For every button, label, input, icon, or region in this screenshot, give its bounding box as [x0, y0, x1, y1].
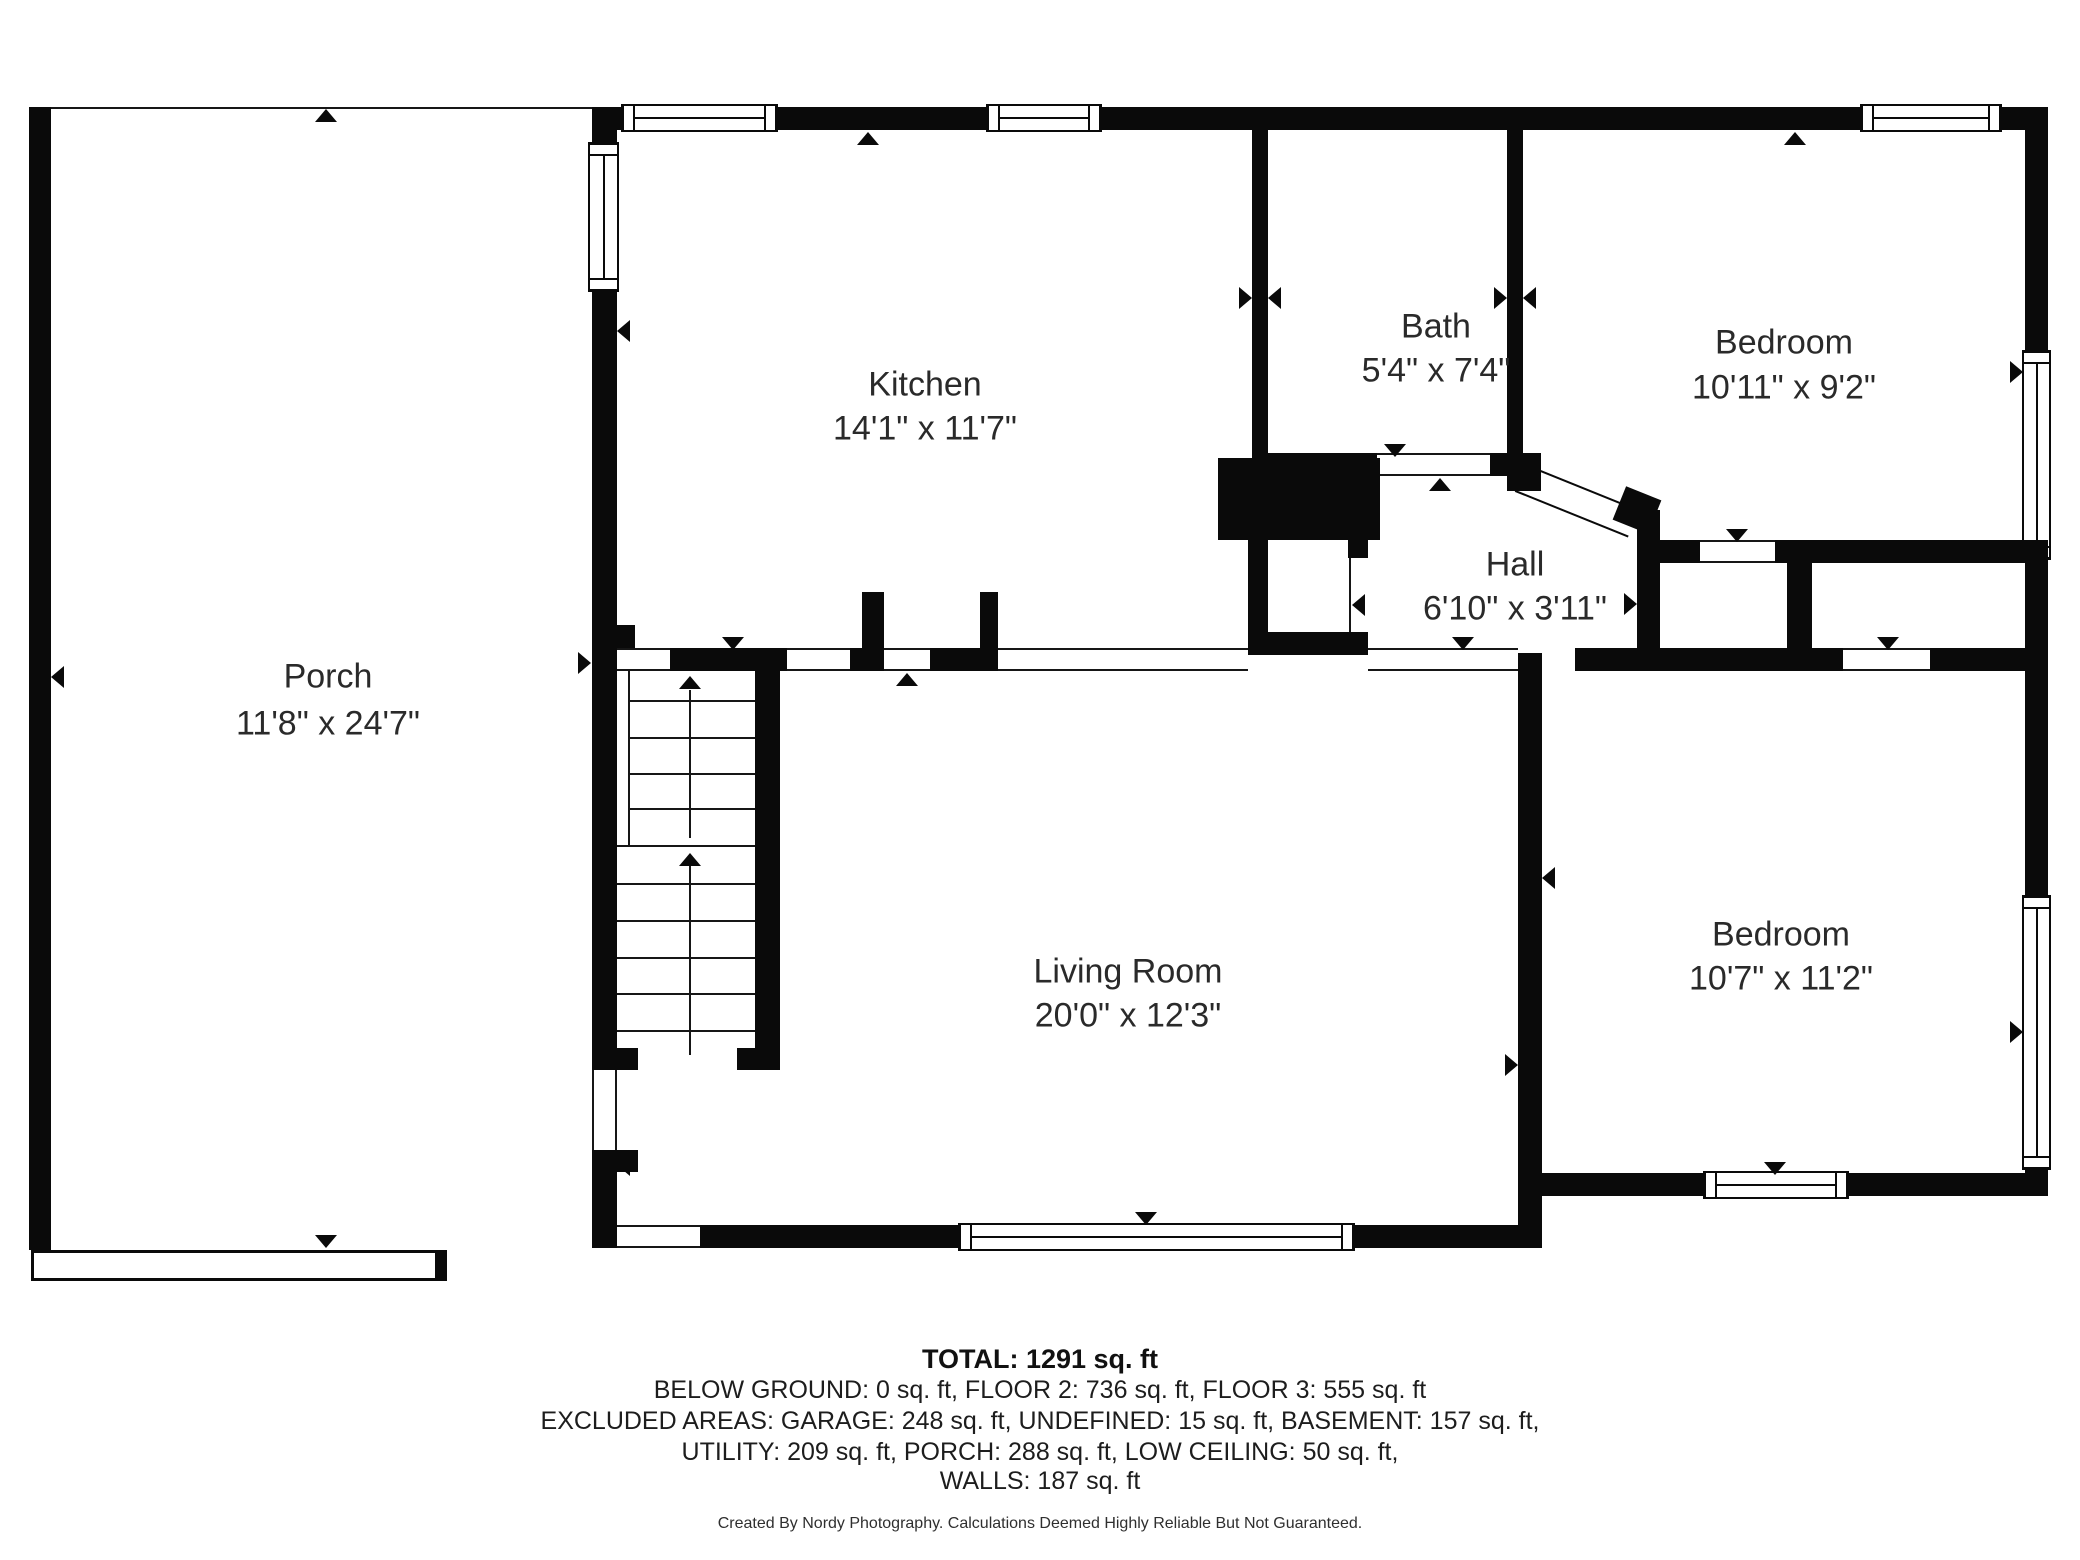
window-pane-line [1871, 117, 1991, 119]
wall-lr-bedroom-divider [1518, 653, 1542, 1248]
opening-edge [998, 669, 1248, 671]
room-label-porch: Porch [284, 658, 373, 697]
wall-porch-lr-lower [592, 1150, 617, 1248]
door-edge [617, 1225, 700, 1227]
porch-step-cap [435, 1250, 447, 1281]
camera-marker-icon [1452, 637, 1474, 650]
room-label-bedroom-bottom: Bedroom [1712, 916, 1850, 955]
window-pane-line [969, 1236, 1344, 1238]
room-label-kitchen: Kitchen [868, 366, 981, 405]
porch-step [31, 1250, 447, 1281]
wall-porch-left [29, 107, 51, 1250]
wall-kitchen-left-upper [592, 107, 617, 142]
opening-edge [787, 669, 850, 671]
room-label-bath: Bath [1401, 308, 1471, 347]
stair-tread [617, 883, 755, 885]
camera-marker-icon [1726, 529, 1748, 542]
stair-up-arrow-icon [679, 853, 701, 866]
stair-tread [630, 700, 755, 702]
window-cap [1341, 1223, 1354, 1251]
camera-marker-icon [857, 132, 879, 145]
stair-tread [630, 773, 755, 775]
camera-marker-icon [1523, 287, 1536, 309]
window-kitchen-north-2 [986, 104, 1102, 132]
window-cap [1835, 1171, 1848, 1199]
window-pane-line [632, 117, 767, 119]
stair-tread [630, 737, 755, 739]
camera-marker-icon [1494, 287, 1507, 309]
wall-block-hall-north [1218, 458, 1380, 540]
stair-tread [617, 957, 755, 959]
camera-marker-icon [2010, 361, 2023, 383]
window-bedroom-bottom-east [2022, 895, 2051, 1170]
window-pane-line [603, 153, 605, 281]
window-cap [2022, 896, 2051, 909]
window-cap [959, 1223, 972, 1251]
wall-bedroom-bottom-south-left [1518, 1173, 1703, 1196]
door-edge [1349, 558, 1351, 632]
camera-marker-icon [617, 320, 630, 342]
stair-up-arrow-icon [679, 676, 701, 689]
diagonal-wall-cap [1507, 453, 1541, 491]
window-kitchen-north-1 [621, 104, 778, 132]
camera-marker-icon [1268, 287, 1281, 309]
window-cap [2022, 351, 2051, 364]
door-edge [1377, 474, 1490, 476]
stair-landing-edge [617, 845, 755, 847]
opening-edge [787, 648, 850, 650]
camera-marker-icon [617, 1154, 630, 1176]
window-cap [588, 143, 619, 156]
camera-marker-icon [2010, 1021, 2023, 1043]
camera-marker-icon [1542, 867, 1555, 889]
camera-marker-icon [51, 666, 64, 688]
wall-lr-south-right [1355, 1225, 1542, 1248]
window-pane-line [2036, 906, 2038, 1159]
wall-stub [980, 592, 998, 671]
window-pane-line [1714, 1184, 1838, 1186]
wall-kitchen-left-main [592, 292, 617, 1070]
wall-bath-bedroom-divider [1507, 130, 1523, 465]
summary-line-3: EXCLUDED AREAS: GARAGE: 248 sq. ft, UNDE… [0, 1407, 2080, 1436]
window-cap [1088, 104, 1101, 132]
room-dims-bedroom-top: 10'11" x 9'2" [1692, 369, 1876, 408]
camera-marker-icon [1239, 287, 1252, 309]
opening-edge [884, 669, 930, 671]
camera-marker-icon [1384, 444, 1406, 457]
summary-total: TOTAL: 1291 sq. ft [0, 1344, 2080, 1375]
wall-bedroom-bottom-south-right [1849, 1173, 2048, 1196]
camera-marker-icon [896, 673, 918, 686]
wall-bedroom-top-bottom-right [1775, 540, 2048, 563]
door-edge [1700, 561, 1775, 563]
room-dims-living-room: 20'0" x 12'3" [1035, 997, 1221, 1036]
wall-hall-closet-bottom [1248, 632, 1368, 655]
window-cap [1861, 104, 1874, 132]
camera-marker-icon [1352, 594, 1365, 616]
camera-marker-icon [578, 652, 591, 674]
summary-line-5: WALLS: 187 sq. ft [0, 1467, 2080, 1496]
camera-marker-icon [1784, 132, 1806, 145]
window-bedroom-bottom-south [1703, 1171, 1849, 1199]
stair-arrow-line [689, 865, 691, 1055]
stair-tread [617, 920, 755, 922]
room-label-bedroom-top: Bedroom [1715, 324, 1853, 363]
window-cap [987, 104, 1000, 132]
floor-plan-canvas: Porch 11'8" x 24'7" Kitchen 14'1" x 11'7… [0, 0, 2080, 1560]
window-bedroom-top-east [2022, 350, 2051, 560]
window-cap [588, 278, 619, 291]
stair-stringer [628, 671, 630, 845]
window-bedroom-top-north [1860, 104, 2002, 132]
window-cap [1704, 1171, 1717, 1199]
wall-bedroom-bottom-top-left [1575, 648, 1843, 671]
wall-stairs-right [755, 648, 780, 1070]
camera-marker-icon [315, 109, 337, 122]
room-dims-kitchen: 14'1" x 11'7" [833, 410, 1017, 449]
wall-kitchen-bath-divider [1252, 130, 1268, 476]
opening-edge [884, 648, 930, 650]
door-edge [615, 1070, 617, 1150]
room-dims-porch: 11'8" x 24'7" [236, 705, 420, 744]
window-cap [764, 104, 777, 132]
room-label-hall: Hall [1486, 546, 1545, 585]
footer-credit: Created By Nordy Photography. Calculatio… [0, 1515, 2080, 1533]
window-cap [622, 104, 635, 132]
camera-marker-icon [722, 637, 744, 650]
wall-hall-closet-stub [1348, 540, 1368, 558]
door-edge [1843, 669, 1930, 671]
window-cap [1988, 104, 2001, 132]
wall-foot [737, 1048, 755, 1070]
door-edge [617, 1246, 700, 1248]
wall-foot [617, 625, 635, 648]
opening-edge [1368, 648, 1518, 650]
wall-lr-south-left [700, 1225, 958, 1248]
camera-marker-icon [1624, 593, 1637, 615]
opening-edge [998, 648, 1248, 650]
stair-tread [617, 993, 755, 995]
door-edge [592, 1070, 594, 1150]
stair-tread [630, 808, 755, 810]
summary-line-4: UTILITY: 209 sq. ft, PORCH: 288 sq. ft, … [0, 1438, 2080, 1467]
opening-edge [617, 669, 670, 671]
camera-marker-icon [1505, 1054, 1518, 1076]
stair-tread [617, 1030, 755, 1032]
wall-closet-left [1637, 510, 1660, 655]
window-pane-line [2036, 361, 2038, 549]
camera-marker-icon [1135, 1212, 1157, 1225]
window-kitchen-west [588, 142, 619, 292]
room-label-living-room: Living Room [1034, 953, 1223, 992]
opening-edge [617, 648, 670, 650]
camera-marker-icon [315, 1235, 337, 1248]
wall-top [592, 107, 2048, 130]
summary-line-2: BELOW GROUND: 0 sq. ft, FLOOR 2: 736 sq.… [0, 1376, 2080, 1405]
room-dims-bedroom-bottom: 10'7" x 11'2" [1689, 960, 1873, 999]
camera-marker-icon [1877, 637, 1899, 650]
camera-marker-icon [1764, 1162, 1786, 1175]
wall-foot [617, 1048, 638, 1070]
window-cap [2022, 1156, 2051, 1169]
window-pane-line [997, 117, 1091, 119]
wall-stub-flare [850, 648, 884, 671]
camera-marker-icon [1429, 478, 1451, 491]
room-dims-hall: 6'10" x 3'11" [1423, 590, 1607, 629]
wall-bedroom-bottom-top-right [1930, 648, 2048, 671]
room-dims-bath: 5'4" x 7'4" [1362, 352, 1511, 391]
opening-edge [1368, 669, 1518, 671]
stair-arrow-line [689, 690, 691, 838]
window-lr-south [958, 1223, 1355, 1251]
